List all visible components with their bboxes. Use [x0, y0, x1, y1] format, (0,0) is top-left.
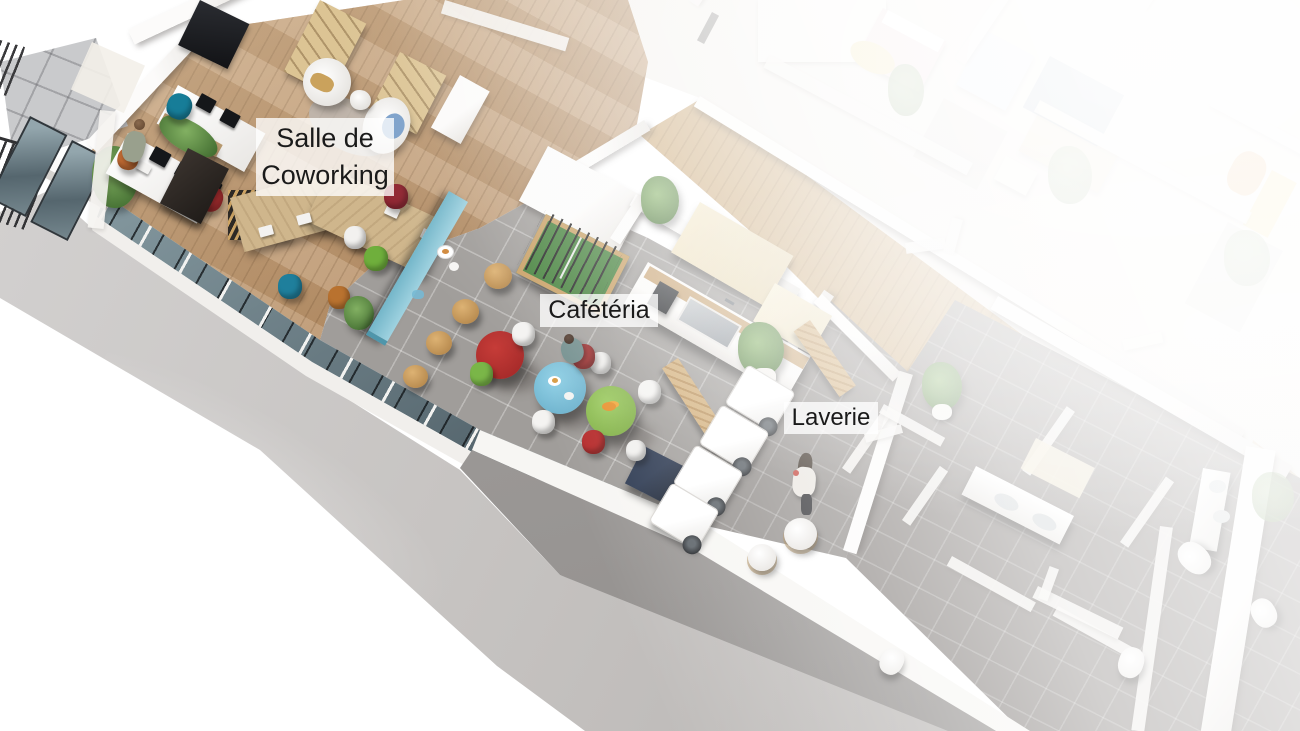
label-coworking-line2: Coworking	[261, 157, 389, 194]
cafe-chair-white-5	[626, 440, 646, 461]
laundry-person-legs	[801, 494, 812, 515]
person-seated-head	[564, 334, 574, 344]
label-laundry: Laverie	[784, 402, 878, 434]
laundry-stool-1	[784, 518, 817, 550]
bathroom-hall-plant	[922, 362, 962, 410]
table-blue	[534, 362, 586, 414]
chair-green	[364, 246, 388, 271]
far-plant-1	[888, 64, 924, 116]
bar-stool-2	[452, 299, 479, 324]
label-coworking-line1: Salle de	[276, 120, 374, 157]
cafe-chair-green	[470, 362, 493, 386]
bar-stool-1	[484, 263, 512, 289]
counter-croissant	[442, 249, 449, 254]
floor-plant-coworking	[344, 296, 374, 330]
label-cafeteria: Cafétéria	[540, 294, 658, 327]
cafe-chair-white-1	[512, 322, 535, 346]
blue-table-food	[552, 378, 558, 383]
far-plant-3	[1224, 230, 1270, 286]
counter-glasses	[412, 290, 424, 299]
counter-teapot	[449, 262, 459, 271]
chair-blue	[278, 274, 302, 299]
vanity-wall-sink-2	[1213, 510, 1230, 523]
laundry-person-cup	[793, 470, 799, 476]
green-table-oranges	[602, 402, 616, 411]
cafe-chair-white-3	[638, 380, 661, 404]
label-cafeteria-text: Cafétéria	[548, 296, 649, 325]
cafe-chair-red	[582, 430, 605, 454]
label-laundry-text: Laverie	[792, 404, 871, 432]
blue-table-saucer	[564, 392, 574, 400]
laundry-stool-2	[748, 544, 776, 571]
vanity-wall-sink-1	[1209, 480, 1226, 493]
lounge-coffee-table	[350, 90, 371, 110]
bar-stool-4	[403, 365, 428, 388]
floorplan-render: Salle de Coworking Cafétéria Laverie	[0, 0, 1300, 731]
far-plant-2	[1048, 146, 1092, 204]
cafe-chair-white-2	[532, 410, 555, 434]
table-green	[586, 386, 636, 436]
kitchen-plant-corner	[641, 176, 679, 224]
bar-stool-3	[426, 331, 452, 355]
person-standing-head	[134, 119, 145, 130]
bathroom-hall-plant-pot	[932, 404, 952, 420]
chair-white-desk	[344, 226, 366, 249]
far-plant-4	[1252, 472, 1294, 522]
label-coworking: Salle de Coworking	[256, 118, 394, 196]
